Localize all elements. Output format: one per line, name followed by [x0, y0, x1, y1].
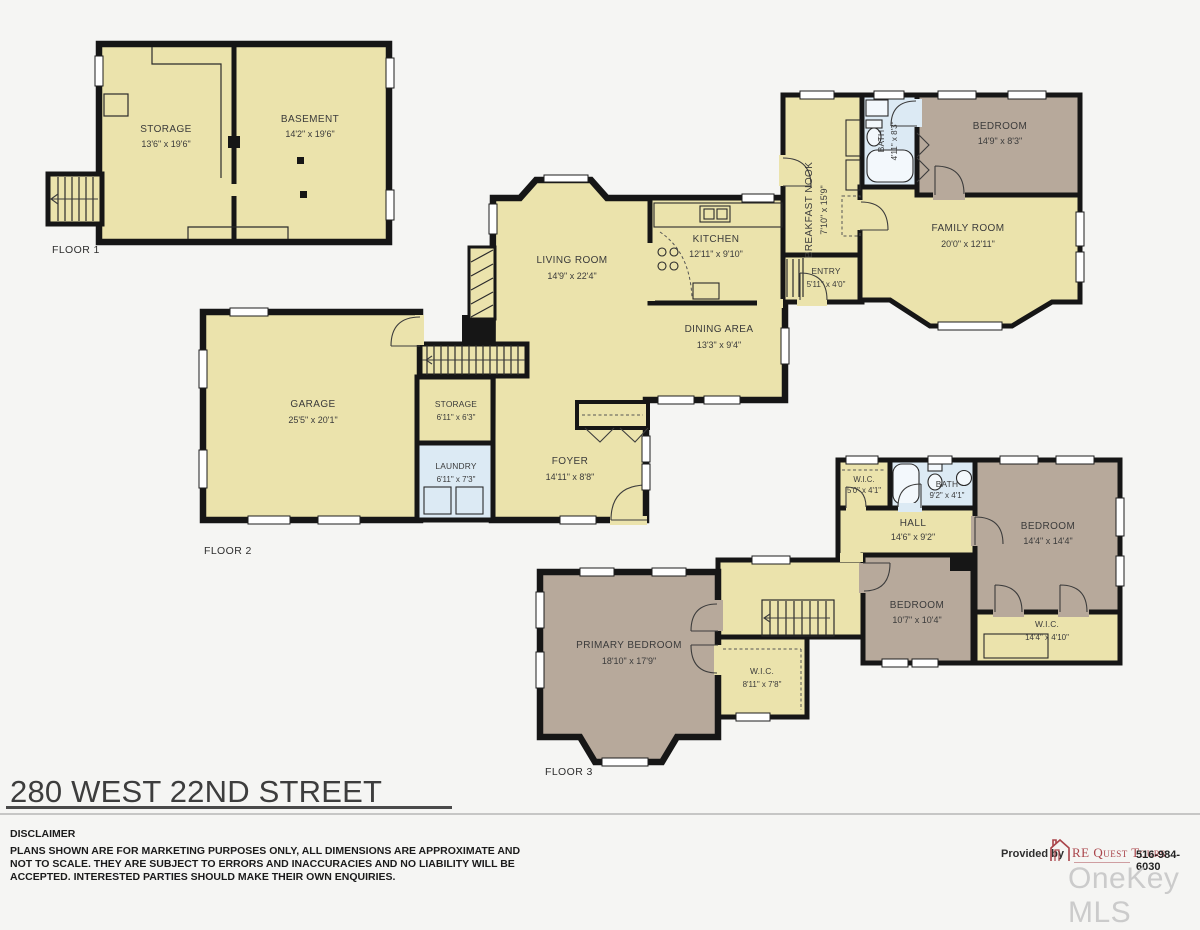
room-dims-storage-f1: 13'6" x 19'6"	[141, 139, 190, 149]
disclaimer-heading: DISCLAIMER	[10, 828, 75, 840]
room-dims-dining: 13'3" x 9'4"	[697, 340, 741, 350]
room-label-storage-f1: STORAGE	[140, 124, 192, 135]
room-label-hall: HALL	[900, 518, 927, 529]
room-dims-bath-f2: 4'11" x 8'3"	[890, 121, 899, 160]
room-label-garage: GARAGE	[290, 399, 335, 410]
room-storage-f2	[417, 377, 493, 443]
divider-line	[0, 813, 1200, 815]
room-dims-wic-mid: 8'11" x 7'8"	[743, 680, 782, 689]
sink-icon	[957, 471, 972, 486]
room-dims-garage: 25'5" x 20'1"	[288, 415, 337, 425]
house-logo-icon	[1049, 837, 1071, 863]
room-label-bath-f3: BATH	[936, 479, 959, 489]
toilet-icon	[866, 120, 882, 128]
room-entry	[783, 255, 862, 302]
room-label-bedroom-f2: BEDROOM	[973, 121, 1027, 132]
room-dims-family: 20'0" x 12'11"	[941, 239, 995, 249]
page-title: 280 WEST 22ND STREET	[10, 774, 382, 810]
room-primary-bedroom	[540, 572, 718, 762]
room-label-laundry: LAUNDRY	[435, 461, 476, 471]
room-label-bath-f2: BATH	[876, 130, 886, 153]
title-underline	[6, 806, 452, 809]
opening-hall-stairs	[840, 553, 863, 562]
disclaimer-line-1: PLANS SHOWN ARE FOR MARKETING PURPOSES O…	[10, 845, 520, 858]
toilet-icon	[928, 464, 942, 471]
floorplan-sheet: { "title": "280 WEST 22ND STREET", "disc…	[0, 0, 1200, 900]
room-dims-breakfast-nook: 7'10" x 15'9"	[819, 185, 829, 234]
room-dims-hall: 14'6" x 9'2"	[891, 532, 935, 542]
room-label-foyer: FOYER	[552, 456, 588, 467]
opening-kitchen-dining	[757, 299, 783, 308]
room-dims-basement: 14'2" x 19'6"	[285, 129, 334, 139]
floor-3-label: FLOOR 3	[545, 766, 593, 778]
room-dims-foyer: 14'11" x 8'8"	[546, 472, 595, 482]
chimney-f1	[228, 136, 240, 148]
room-family	[860, 187, 1080, 326]
disclaimer-line-2: NOT TO SCALE. THEY ARE SUBJECT TO ERRORS…	[10, 858, 520, 871]
room-dims-kitchen: 12'11" x 9'10"	[689, 249, 743, 259]
room-dims-laundry: 6'11" x 7'3"	[437, 475, 476, 484]
room-dims-storage-f2: 6'11" x 6'3"	[437, 413, 476, 422]
post-icon	[300, 191, 307, 198]
room-label-breakfast-nook: BREAKFAST NOOK	[804, 162, 815, 259]
room-label-wic-small: W.I.C.	[853, 475, 874, 484]
window	[95, 56, 103, 86]
room-label-wic-mid: W.I.C.	[750, 666, 774, 676]
disclaimer-body: PLANS SHOWN ARE FOR MARKETING PURPOSES O…	[10, 845, 520, 884]
corridor-f3	[718, 560, 865, 637]
room-dims-bath-f3: 9'2" x 4'1"	[930, 491, 965, 500]
room-dims-living: 14'9" x 22'4"	[547, 271, 596, 281]
sink-icon	[866, 100, 888, 116]
room-dims-wic-small: 5'0" x 4'1"	[847, 486, 881, 495]
room-dims-bedroom-middle: 10'7" x 10'4"	[892, 615, 941, 625]
room-label-bedroom-right: BEDROOM	[1021, 521, 1075, 532]
room-label-dining: DINING AREA	[685, 324, 754, 335]
room-label-wic-long: W.I.C.	[1035, 619, 1059, 629]
room-label-family: FAMILY ROOM	[932, 223, 1005, 234]
utility-box-f1	[104, 94, 128, 116]
room-label-primary: PRIMARY BEDROOM	[576, 640, 682, 651]
room-dims-wic-long: 14'4" x 4'10"	[1025, 633, 1069, 642]
window	[386, 58, 394, 88]
floor-1-label: FLOOR 1	[52, 244, 100, 256]
fireplace	[469, 247, 495, 319]
room-label-basement: BASEMENT	[281, 114, 339, 125]
room-label-living: LIVING ROOM	[536, 255, 607, 266]
window	[386, 190, 394, 220]
mls-watermark: OneKey MLS	[1068, 862, 1200, 930]
room-dims-primary: 18'10" x 17'9"	[602, 656, 656, 666]
room-dims-bedroom-f2: 14'9" x 8'3"	[978, 136, 1022, 146]
room-label-storage-f2: STORAGE	[435, 399, 477, 409]
disclaimer-line-3: ACCEPTED. INTERESTED PARTIES SHOULD MAKE…	[10, 871, 520, 884]
floor-1: STORAGE 13'6" x 19'6" BASEMENT 14'2" x 1…	[48, 44, 394, 256]
room-dims-entry: 5'11" x 4'0"	[807, 280, 846, 289]
wall-notch-f3	[950, 555, 973, 571]
opening-kitchen-living	[646, 243, 655, 301]
post-icon	[297, 157, 304, 164]
floor-2-label: FLOOR 2	[204, 545, 252, 557]
room-label-kitchen: KITCHEN	[693, 234, 740, 245]
room-label-entry: ENTRY	[811, 266, 840, 276]
floorplan-canvas: STORAGE 13'6" x 19'6" BASEMENT 14'2" x 1…	[0, 0, 1200, 900]
room-label-bedroom-middle: BEDROOM	[890, 600, 944, 611]
room-dims-bedroom-right: 14'4" x 14'4"	[1023, 536, 1072, 546]
